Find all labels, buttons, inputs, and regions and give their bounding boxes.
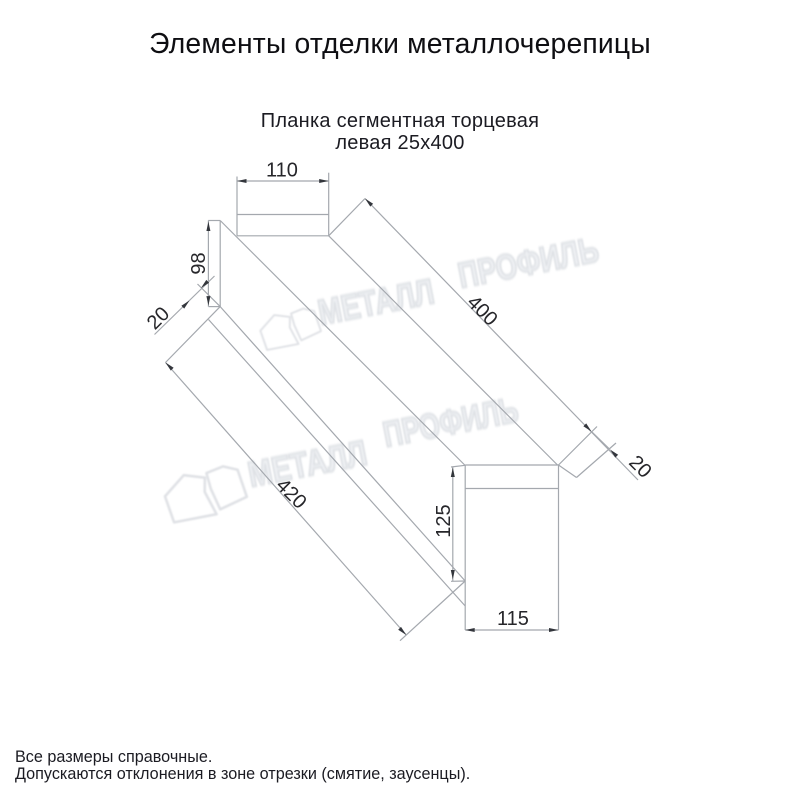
svg-text:98: 98 (188, 252, 210, 274)
svg-text:125: 125 (433, 504, 455, 537)
svg-text:110: 110 (266, 160, 298, 182)
svg-text:400: 400 (462, 291, 501, 330)
svg-text:115: 115 (497, 608, 529, 630)
svg-text:20: 20 (143, 303, 174, 334)
svg-text:420: 420 (271, 474, 310, 513)
svg-text:20: 20 (624, 451, 655, 482)
